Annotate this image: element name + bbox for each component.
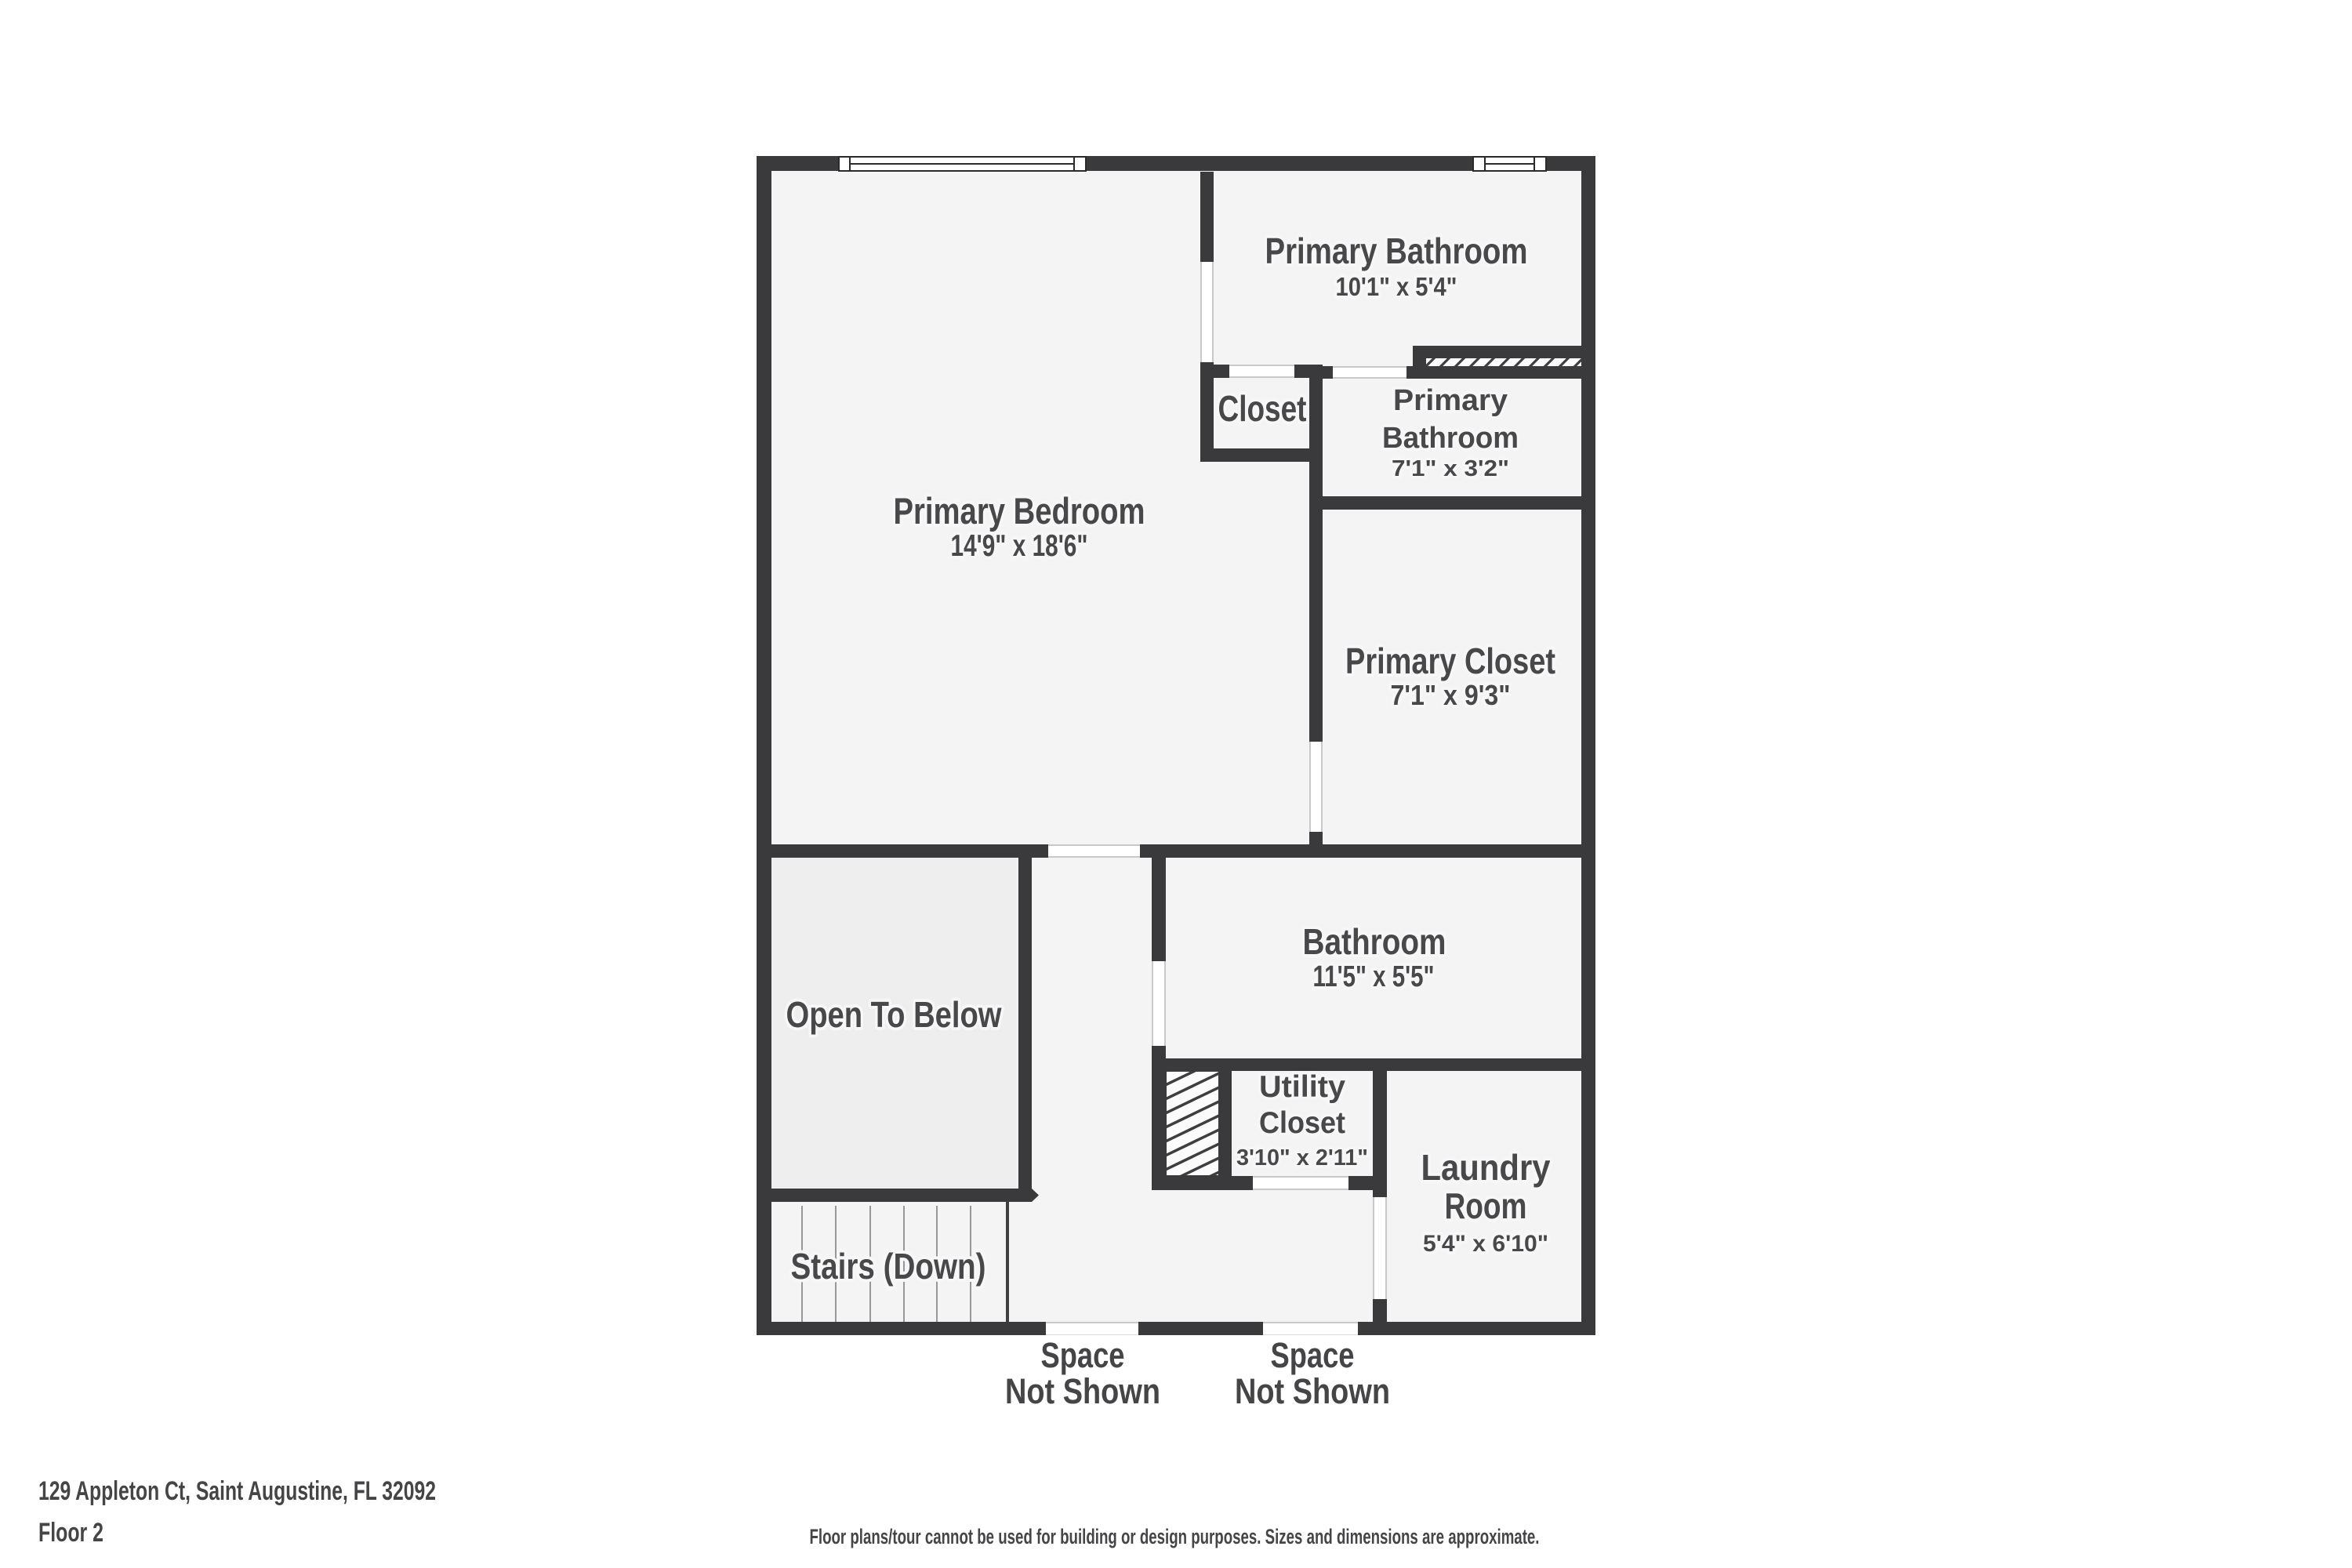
svg-text:Bathroom: Bathroom	[1382, 422, 1519, 455]
svg-text:11'5" x 5'5": 11'5" x 5'5"	[1313, 960, 1435, 993]
svg-text:Primary Bathroom: Primary Bathroom	[1265, 230, 1528, 271]
svg-text:Space: Space	[1041, 1335, 1125, 1375]
svg-text:Room: Room	[1445, 1185, 1527, 1226]
svg-text:Utility: Utility	[1259, 1070, 1345, 1104]
svg-text:Primary: Primary	[1393, 384, 1508, 417]
svg-text:Primary Closet: Primary Closet	[1345, 641, 1555, 681]
svg-text:Stairs (Down): Stairs (Down)	[791, 1246, 986, 1287]
svg-text:Laundry: Laundry	[1421, 1147, 1551, 1188]
svg-text:Not Shown: Not Shown	[1005, 1371, 1160, 1411]
svg-text:Bathroom: Bathroom	[1303, 921, 1446, 962]
svg-text:Space: Space	[1271, 1335, 1355, 1375]
svg-text:5'4" x 6'10": 5'4" x 6'10"	[1423, 1231, 1548, 1257]
svg-text:Primary Bedroom: Primary Bedroom	[894, 490, 1145, 532]
svg-text:129 Appleton Ct, Saint Augusti: 129 Appleton Ct, Saint Augustine, FL 320…	[38, 1476, 436, 1506]
svg-text:Open To Below: Open To Below	[786, 994, 1002, 1035]
svg-text:7'1" x 3'2": 7'1" x 3'2"	[1392, 456, 1509, 481]
svg-text:Closet: Closet	[1218, 388, 1307, 429]
svg-text:Not Shown: Not Shown	[1235, 1371, 1390, 1411]
svg-text:Floor 2: Floor 2	[38, 1518, 103, 1548]
svg-text:14'9" x 18'6": 14'9" x 18'6"	[951, 529, 1088, 563]
svg-text:Closet: Closet	[1259, 1106, 1345, 1140]
svg-text:10'1" x 5'4": 10'1" x 5'4"	[1336, 272, 1457, 301]
svg-text:Floor plans/tour cannot be use: Floor plans/tour cannot be used for buil…	[810, 1525, 1540, 1548]
svg-text:7'1" x 9'3": 7'1" x 9'3"	[1391, 679, 1511, 711]
svg-text:3'10" x 2'11": 3'10" x 2'11"	[1236, 1145, 1368, 1171]
